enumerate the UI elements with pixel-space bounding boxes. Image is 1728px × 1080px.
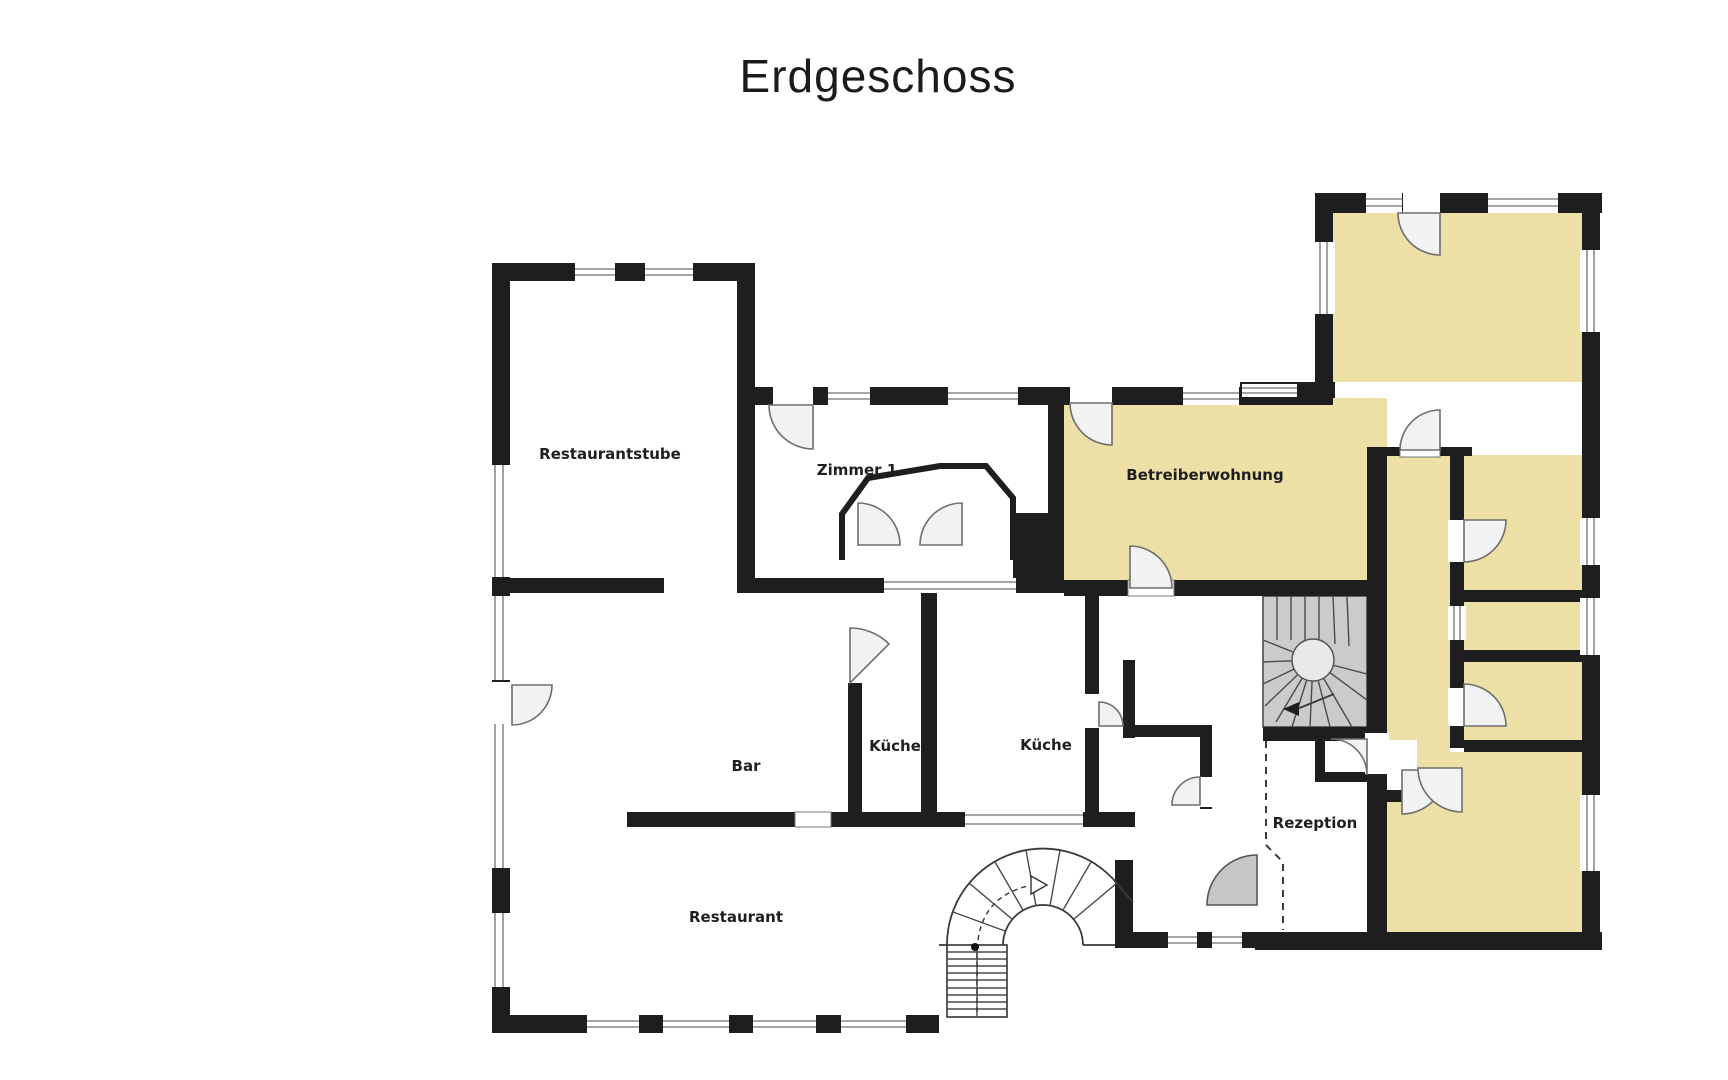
window [1366, 193, 1402, 213]
door-arc-kueche-rechts [1099, 702, 1123, 726]
rezeption-counter-dashed-line [1266, 741, 1283, 930]
window [488, 465, 510, 577]
label-bar: Bar [732, 757, 762, 775]
floor-plan-page: Restaurantstube Zimmer 1 Betreiberwohnun… [0, 0, 1728, 1080]
window [1183, 387, 1239, 405]
entrance-door-arc [1207, 855, 1257, 905]
window [1580, 250, 1602, 332]
door-arc-bar-entry [512, 685, 552, 725]
door-arc-hall [1172, 777, 1200, 805]
label-rezeption: Rezeption [1273, 814, 1358, 832]
room-area-top-right [1325, 205, 1582, 382]
label-kueche-rechts: Küche [1020, 736, 1072, 754]
window [1580, 795, 1602, 871]
window [828, 387, 870, 405]
door-arc-rezeption [1331, 739, 1367, 775]
window [1242, 384, 1297, 397]
kitchen-pass-opening [965, 812, 1083, 827]
window [1168, 932, 1197, 948]
window [1313, 242, 1335, 314]
door-arc-kueche-links [850, 628, 889, 683]
room-area-b [1464, 602, 1582, 650]
spiral-stairs-arrow-icon [1031, 876, 1047, 894]
spiral-stairs [939, 849, 1133, 1017]
main-stairs [1263, 596, 1367, 727]
door-arc-corridor-top [1400, 410, 1440, 450]
window [1580, 518, 1602, 565]
window [488, 596, 510, 680]
window [645, 263, 693, 281]
door-arc-zimmer1 [769, 405, 813, 449]
main-stairs-newel [1292, 639, 1334, 681]
wide-opening [884, 578, 1016, 593]
label-zimmer-1: Zimmer 1 [817, 461, 898, 479]
label-restaurant: Restaurant [689, 908, 783, 926]
window [753, 1015, 816, 1033]
window [1212, 932, 1242, 948]
annotations [1266, 741, 1283, 930]
window [1580, 598, 1602, 655]
room-area-corridor [1387, 452, 1450, 752]
floor-plan-drawing: Restaurantstube Zimmer 1 Betreiberwohnun… [0, 0, 1728, 1080]
label-restaurantstube: Restaurantstube [539, 445, 681, 463]
label-kueche-links: Küche [869, 737, 921, 755]
page-title: Erdgeschoss [740, 50, 1017, 102]
window [1488, 193, 1558, 213]
window [488, 724, 510, 868]
window [663, 1015, 729, 1033]
window [575, 263, 615, 281]
window [488, 913, 510, 987]
spiral-stairs-newel-dot [971, 943, 979, 951]
window [587, 1015, 639, 1033]
window [1448, 606, 1466, 640]
window [841, 1015, 906, 1033]
label-betreiberwohnung: Betreiberwohnung [1126, 466, 1283, 484]
window [948, 387, 1018, 405]
